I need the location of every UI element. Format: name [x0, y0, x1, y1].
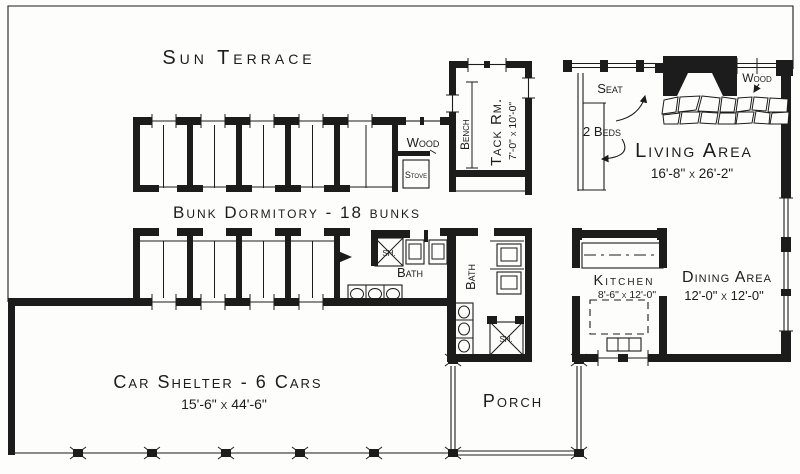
car-shelter-label: Car Shelter - 6 Cars — [113, 372, 322, 392]
floor-plan-drawing: Sun Terrace Bunk Dormitory - 18 bunks Ta… — [0, 0, 800, 474]
shower-right-label: SH. — [499, 335, 512, 344]
kitchen-dims: 8'-6" x 12'-0" — [598, 289, 656, 301]
porch-label: Porch — [483, 391, 543, 411]
tack-room-dims: 7'-0" x 10'-0" — [507, 102, 519, 160]
living-area-dims: 16'-8" x 26'-2" — [651, 166, 733, 181]
wood-fireplace-label: Wood — [742, 71, 772, 85]
windows-east-wall — [779, 198, 793, 331]
bench-label: Bench — [458, 119, 472, 150]
stone-hearth — [662, 96, 789, 124]
bath-right-fixtures — [455, 241, 524, 355]
fireplace — [663, 56, 737, 96]
seat-label: Seat — [597, 81, 623, 96]
car-shelter-posts — [8, 447, 451, 459]
seat-arrow-icon — [616, 96, 645, 121]
bath-left-label: Bath — [397, 265, 423, 280]
living-area-label: Living Area — [635, 140, 753, 162]
dining-area-dims: 12'-0" x 12'-0" — [684, 288, 764, 303]
floor-plan-page: Sun Terrace Bunk Dormitory - 18 bunks Ta… — [0, 0, 800, 474]
door-arrow-icon — [338, 251, 352, 263]
two-beds-label: 2 Beds — [583, 124, 621, 139]
bath-right-label: Bath — [463, 264, 478, 290]
shower-left-label: SH. — [382, 249, 395, 258]
bunk-dormitory-label: Bunk Dormitory - 18 bunks — [173, 203, 421, 222]
beds-arrow-icon — [602, 139, 625, 159]
wood-arrow-icon — [754, 84, 759, 92]
sun-terrace-label: Sun Terrace — [162, 47, 315, 69]
stove-label: Stove — [405, 170, 427, 180]
dining-area-label: Dining Area — [682, 269, 772, 286]
kitchen-label: Kitchen — [594, 273, 655, 289]
wood-alcove-label: Wood — [407, 135, 440, 150]
tack-room-label: Tack Rm. — [488, 98, 505, 166]
car-shelter-dims: 15'-6" x 44'-6" — [181, 396, 267, 412]
